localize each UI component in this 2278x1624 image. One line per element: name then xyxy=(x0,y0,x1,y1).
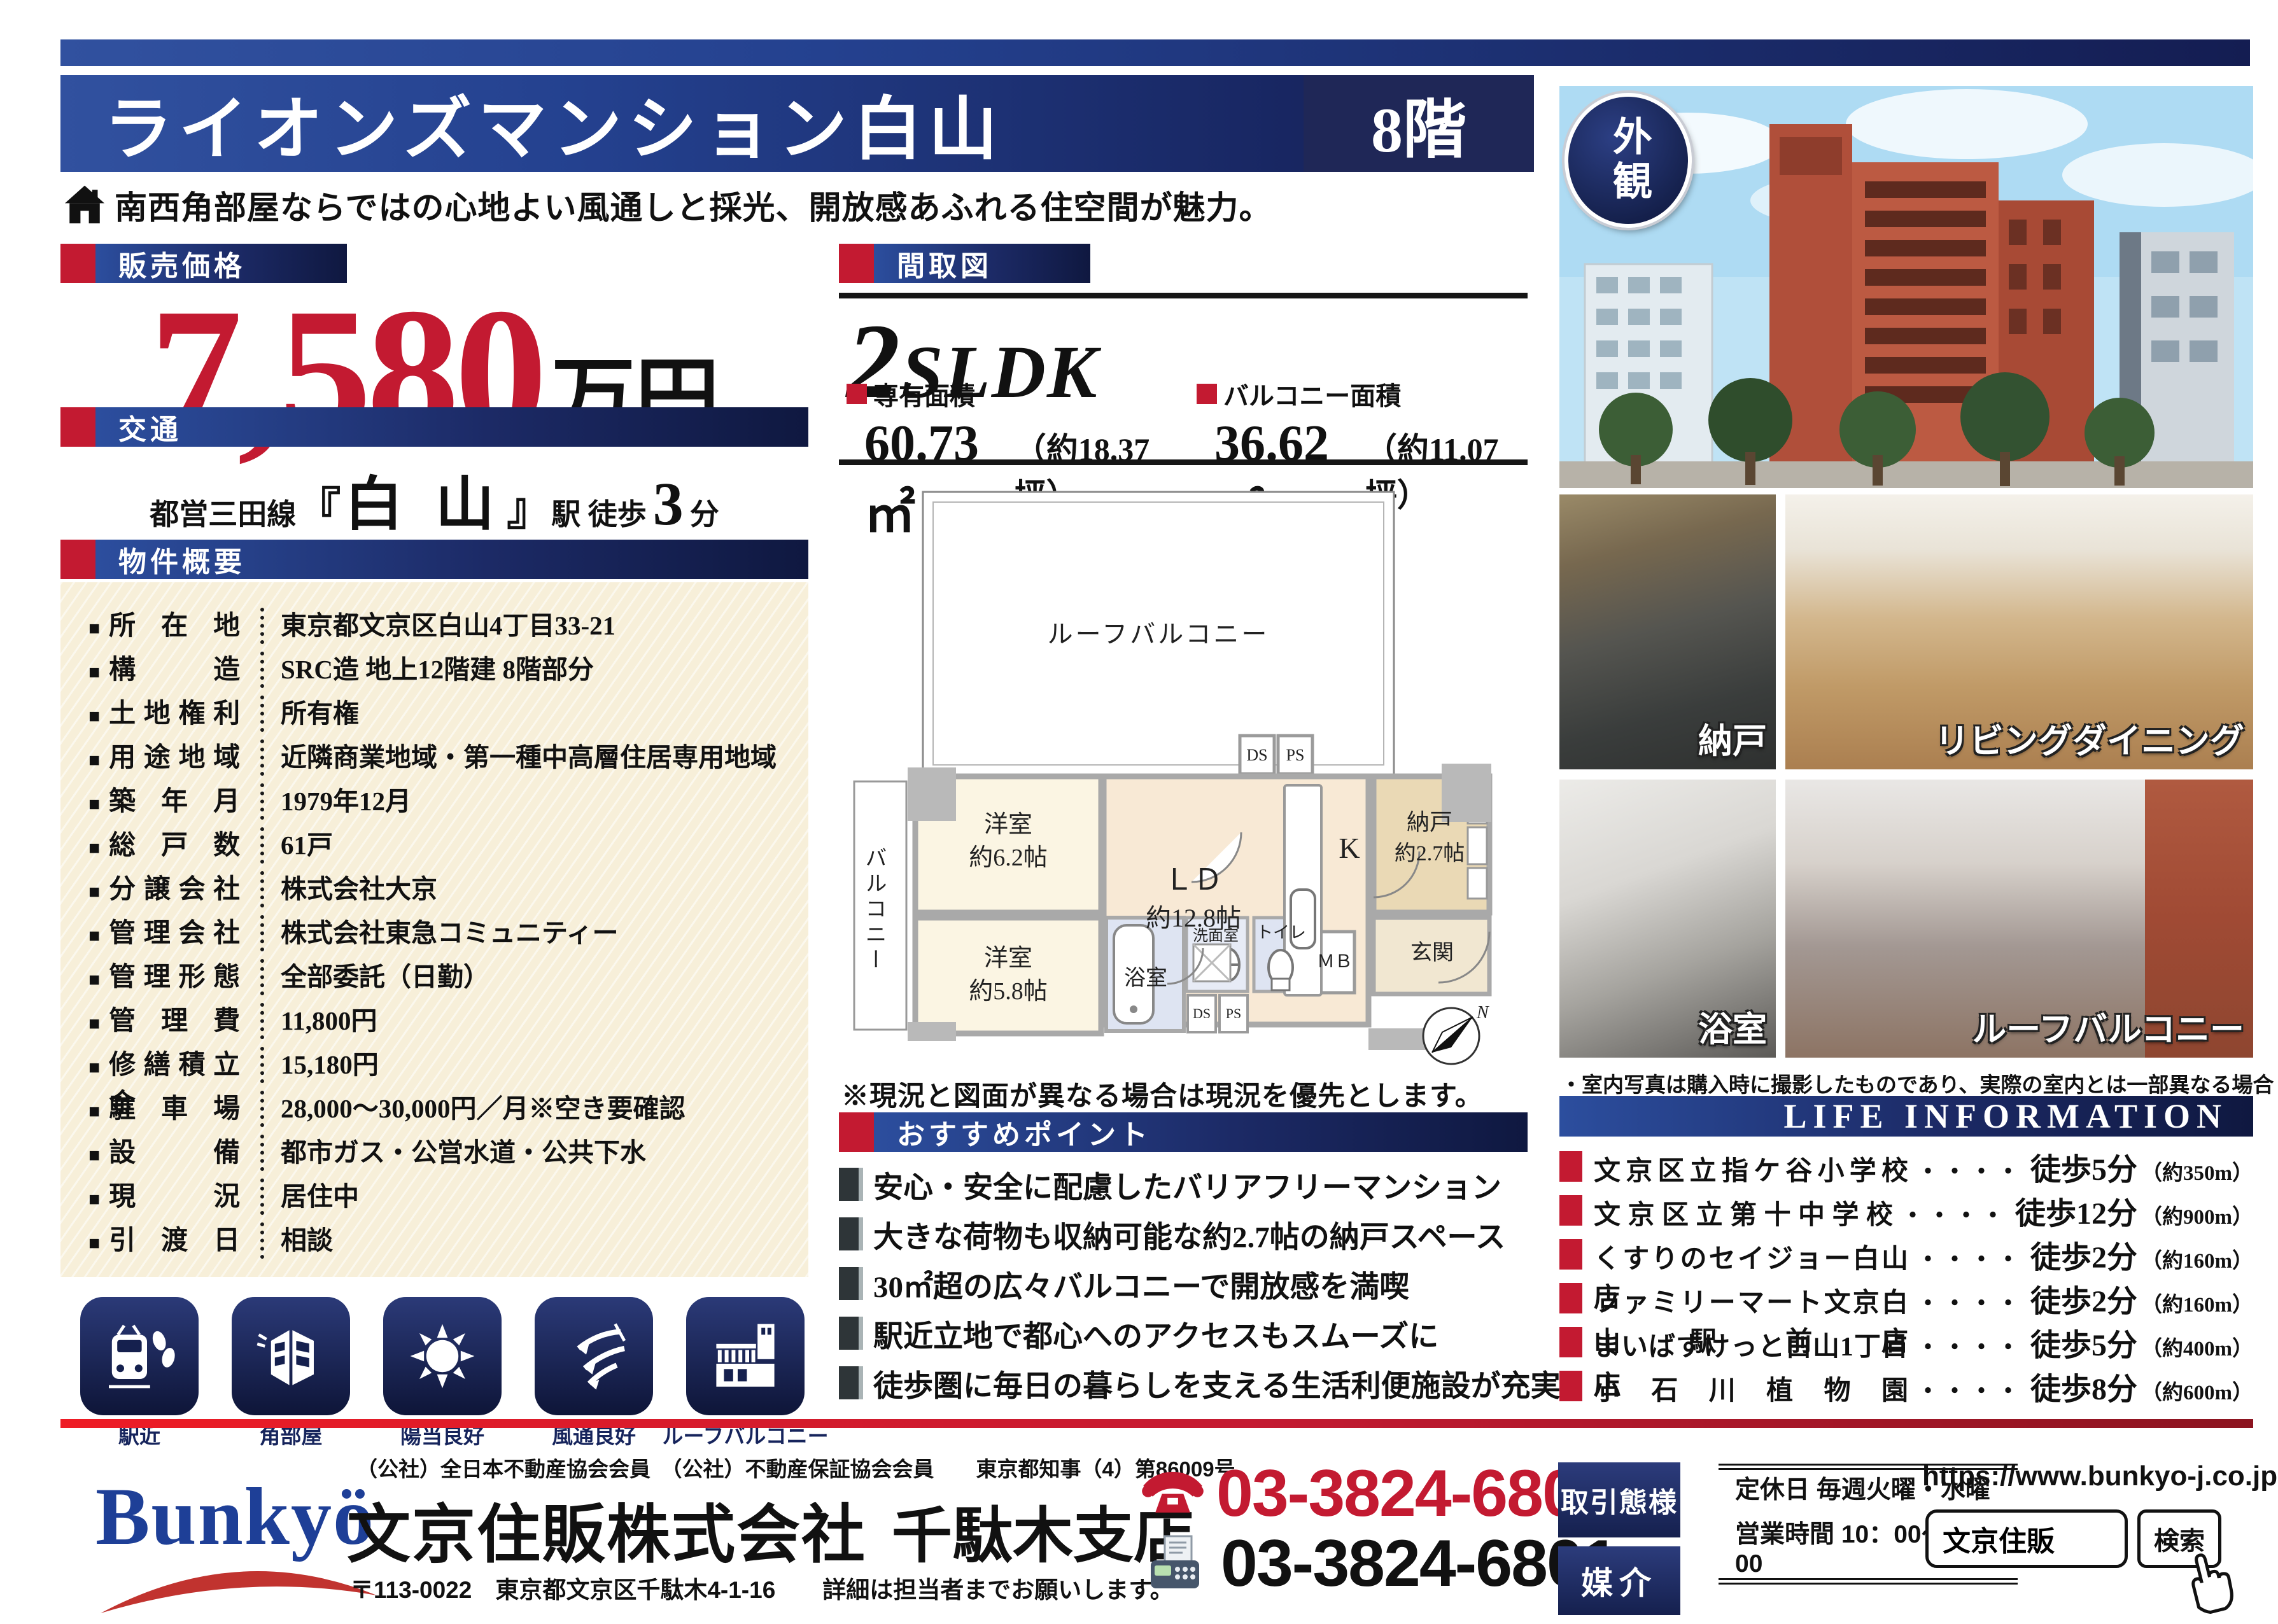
logo-swoosh xyxy=(95,1564,382,1621)
dotted-divider xyxy=(260,1003,264,1039)
dot-leader: ・・・・ xyxy=(1916,1240,2023,1275)
kitchen-label: K xyxy=(1339,832,1360,864)
overview-label: 物件概要 xyxy=(95,539,246,580)
row-label: 引渡日 xyxy=(109,1219,240,1257)
overview-table: 所在地 東京都文京区白山4丁目33-21 構造 SRC造 地上12階建 8階部分… xyxy=(60,582,808,1277)
row-label: 用途地域 xyxy=(109,736,240,774)
walk-time: 徒歩2分 xyxy=(2030,1232,2137,1277)
place-name: 小石川植物園 xyxy=(1594,1369,1908,1408)
roof-balcony-photo: ルーフバルコニー xyxy=(1785,780,2253,1058)
transport-section-header: 交通 xyxy=(60,407,808,447)
dot-leader: ・・・・ xyxy=(1901,1196,2007,1231)
divider xyxy=(839,459,1528,465)
dot-leader: ・・・・ xyxy=(1916,1284,2023,1319)
row-label: 構造 xyxy=(109,648,240,687)
room1-size: 約6.2帖 xyxy=(969,844,1048,871)
life-info-title: LIFE INFORMATION xyxy=(1783,1096,2253,1136)
madori-label: 間取図 xyxy=(874,243,992,284)
row-label: 総戸数 xyxy=(109,823,240,862)
row-value: 株式会社東急コミュニティー xyxy=(281,911,619,949)
storage-size: 約2.7帖 xyxy=(1395,841,1465,865)
tel-row: 03-3824-6800 xyxy=(1139,1456,1614,1532)
row-label: 土地権利 xyxy=(109,692,240,731)
square-bullet xyxy=(839,1267,863,1300)
point-item: 大きな荷物も収納可能な約2.7帖の納戸スペース xyxy=(839,1209,1533,1259)
toilet-label: トイレ xyxy=(1256,923,1306,942)
photo-label: リビングダイニング xyxy=(1935,713,2244,763)
catch-copy-text: 南西角部屋ならではの心地よい風通しと採光、開放感あふれる住空間が魅力。 xyxy=(115,181,1272,228)
table-row: 管理形態 全部委託（日勤） xyxy=(88,955,789,999)
row-value: 全部委託（日勤） xyxy=(281,955,489,993)
fax-row: 03-3824-6801 xyxy=(1146,1526,1618,1602)
dotted-divider xyxy=(260,827,264,864)
photo-label: 浴室 xyxy=(1698,1001,1767,1051)
red-accent xyxy=(60,407,95,447)
life-info-row: 文京区立第十中学校 ・・・・ 徒歩12分 （約900m） xyxy=(1559,1188,2253,1232)
top-accent-bar xyxy=(60,39,2250,66)
walk-time: 徒歩8分 xyxy=(2030,1364,2137,1408)
dotted-divider xyxy=(260,1091,264,1127)
points-label: おすすめポイント xyxy=(874,1112,1151,1152)
deal-type-label: 取引態様 xyxy=(1561,1480,1678,1520)
square-bullet xyxy=(839,1168,863,1201)
exterior-badge: 外観 xyxy=(1564,93,1692,228)
deal-type-value: 媒介 xyxy=(1581,1558,1657,1604)
distance: （約900m） xyxy=(2141,1200,2253,1230)
divider xyxy=(839,293,1528,298)
table-row: 設備 都市ガス・公営水道・公共下水 xyxy=(88,1131,789,1175)
points-section-header: おすすめポイント xyxy=(839,1112,1528,1152)
dotted-divider xyxy=(260,871,264,907)
dotted-divider xyxy=(260,959,264,995)
point-item: 徒歩圏に毎日の暮らしを支える生活利便施設が充実 xyxy=(839,1358,1533,1408)
tel-number: 03-3824-6800 xyxy=(1216,1456,1614,1532)
walk-time: 徒歩5分 xyxy=(2030,1144,2137,1189)
room2-label: 洋室 xyxy=(984,945,1032,972)
row-value: 相談 xyxy=(281,1219,333,1257)
company-name-block: 文京住販株式会社 千駄木支店 xyxy=(347,1483,1194,1575)
row-label: 設備 xyxy=(109,1131,240,1170)
area-label: 専有面積 xyxy=(847,375,1190,412)
north-label: N xyxy=(1476,1003,1489,1023)
row-value: 11,800円 xyxy=(281,999,377,1037)
train-icon xyxy=(80,1297,199,1415)
table-row: 分譲会社 株式会社大京 xyxy=(88,867,789,911)
company-name: 文京住販株式会社 xyxy=(347,1483,866,1575)
place-name: 文京区立第十中学校 xyxy=(1594,1193,1893,1232)
bracket: 』 xyxy=(507,473,551,538)
row-value: 都市ガス・公営水道・公共下水 xyxy=(281,1131,646,1169)
room2-size: 約5.8帖 xyxy=(969,978,1048,1005)
roof-balcony-icon xyxy=(686,1297,805,1415)
table-row: 所在地 東京都文京区白山4丁目33-21 xyxy=(88,604,789,648)
website-url: https://www.bunkyo-j.co.jp xyxy=(1922,1460,2277,1492)
row-value: 近隣商業地域・第一種中高層住居専用地域 xyxy=(281,736,777,774)
distance: （約160m） xyxy=(2141,1243,2253,1274)
distance: （約400m） xyxy=(2141,1331,2253,1362)
fax-icon xyxy=(1146,1532,1209,1596)
storage-label: 納戸 xyxy=(1407,809,1452,835)
life-info-header: LIFE INFORMATION xyxy=(1559,1096,2253,1137)
corner-building-icon xyxy=(232,1297,350,1415)
distance: （約350m） xyxy=(2141,1156,2253,1186)
life-info-list: 文京区立指ケ谷小学校 ・・・・ 徒歩5分 （約350m） 文京区立第十中学校 ・… xyxy=(1559,1144,2253,1408)
red-accent xyxy=(839,1112,874,1152)
life-info-row: 文京区立指ケ谷小学校 ・・・・ 徒歩5分 （約350m） xyxy=(1559,1144,2253,1188)
table-row: 構造 SRC造 地上12階建 8階部分 xyxy=(88,648,789,692)
red-bullet xyxy=(1559,1283,1582,1313)
hand-cursor-icon xyxy=(2166,1540,2245,1623)
transport-line: 都営三田線 『 白 山 』 駅 徒歩 3 分 xyxy=(60,457,808,521)
point-item: 30㎡超の広々バルコニーで開放感を満喫 xyxy=(839,1259,1533,1308)
point-text: 大きな荷物も収納可能な約2.7帖の納戸スペース xyxy=(873,1212,1505,1256)
row-value: 1979年12月 xyxy=(281,780,411,818)
square-bullet xyxy=(839,1217,863,1250)
wind-icon xyxy=(535,1297,653,1415)
row-value: 居住中 xyxy=(281,1175,359,1213)
point-item: 駅近立地で都心へのアクセスもスムーズに xyxy=(839,1308,1533,1358)
company-address: 〒113-0022 東京都文京区千駄木4-1-16 詳細は担当者までお願いします… xyxy=(350,1571,1174,1605)
point-text: 徒歩圏に毎日の暮らしを支える生活利便施設が充実 xyxy=(873,1361,1561,1405)
walk-label: 駅 徒歩 xyxy=(551,491,647,533)
dotted-divider xyxy=(260,1179,264,1215)
balcony-label: バルコニー xyxy=(858,846,889,974)
life-info-row: ファミリーマート文京白山駅前店 ・・・・ 徒歩2分 （約160m） xyxy=(1559,1276,2253,1320)
table-row: 土地権利 所有権 xyxy=(88,692,789,736)
page-title: ライオンズマンション白山 xyxy=(60,74,1004,173)
storage-photo: 納戸 xyxy=(1559,494,1776,769)
walk-time: 徒歩12分 xyxy=(2015,1188,2137,1233)
table-row: 管理費 11,800円 xyxy=(88,999,789,1043)
table-row: 駐車場 28,000〜30,000円／月※空き要確認 xyxy=(88,1087,789,1131)
deal-type-value-box: 媒介 xyxy=(1558,1546,1680,1615)
walk-minutes-unit: 分 xyxy=(690,491,719,533)
wash-label: 洗面室 xyxy=(1193,927,1239,944)
station-name: 白 山 xyxy=(344,457,503,542)
distance: （約160m） xyxy=(2141,1287,2253,1318)
dotted-divider xyxy=(260,1135,264,1171)
life-info-row: 小石川植物園 ・・・・ 徒歩8分 （約600m） xyxy=(1559,1364,2253,1408)
dotted-divider xyxy=(260,1047,264,1083)
dotted-divider xyxy=(260,915,264,951)
photo-label: ルーフバルコニー xyxy=(1972,1001,2244,1051)
living-dining-photo: リビングダイニング xyxy=(1785,494,2253,769)
row-label: 現況 xyxy=(109,1175,240,1214)
dotted-divider xyxy=(260,1222,264,1259)
dot-leader: ・・・・ xyxy=(1916,1327,2023,1362)
red-bullet xyxy=(1559,1371,1582,1401)
row-label: 管理費 xyxy=(109,999,240,1038)
bath-photo: 浴室 xyxy=(1559,780,1776,1058)
row-value: SRC造 地上12階建 8階部分 xyxy=(281,648,594,686)
floor-badge-label: 8階 xyxy=(1371,78,1466,170)
madori-section-header: 間取図 xyxy=(839,244,1090,283)
square-bullet xyxy=(839,1317,863,1350)
row-value: 61戸 xyxy=(281,823,333,862)
ds-label: DS xyxy=(1193,1005,1211,1021)
logo-text: Bunkyö xyxy=(95,1470,388,1564)
row-label: 管理会社 xyxy=(109,911,240,950)
row-label: 分譲会社 xyxy=(109,867,240,906)
red-bullet xyxy=(1559,1151,1582,1182)
row-value: 28,000〜30,000円／月※空き要確認 xyxy=(281,1087,686,1125)
bracket: 『 xyxy=(296,473,341,538)
table-row: 管理会社 株式会社東急コミュニティー xyxy=(88,911,789,955)
life-info-row: くすりのセイジョー白山店 ・・・・ 徒歩2分 （約160m） xyxy=(1559,1232,2253,1276)
dot-leader: ・・・・ xyxy=(1916,1371,2023,1406)
red-accent xyxy=(60,540,95,579)
red-accent xyxy=(839,244,874,283)
ld-label: ＬＤ xyxy=(1164,864,1223,896)
row-label: 築年月 xyxy=(109,780,240,818)
place-name: 文京区立指ケ谷小学校 xyxy=(1594,1149,1908,1188)
point-item: 安心・安全に配慮したバリアフリーマンション xyxy=(839,1159,1533,1209)
dotted-divider xyxy=(260,608,264,644)
table-row: 築年月 1979年12月 xyxy=(88,780,789,823)
red-bullet xyxy=(1559,1239,1582,1270)
room1-label: 洋室 xyxy=(984,811,1032,838)
exterior-badge-label: 外観 xyxy=(1600,116,1657,205)
roof-balcony-label: ルーフバルコニー xyxy=(1048,620,1270,648)
red-bullet xyxy=(1559,1327,1582,1357)
table-row: 用途地域 近隣商業地域・第一種中高層住居専用地域 xyxy=(88,736,789,780)
table-row: 修繕積立金 15,180円 xyxy=(88,1043,789,1087)
walk-minutes: 3 xyxy=(653,468,684,539)
dotted-divider xyxy=(260,652,264,688)
walk-time: 徒歩5分 xyxy=(2030,1320,2137,1364)
ds-label: DS xyxy=(1246,746,1267,764)
photo-label: 納戸 xyxy=(1698,713,1767,763)
walk-time: 徒歩2分 xyxy=(2030,1276,2137,1320)
house-icon xyxy=(64,184,106,226)
overview-section-header: 物件概要 xyxy=(60,540,808,579)
search-input[interactable] xyxy=(1925,1509,2128,1568)
row-label: 駐車場 xyxy=(109,1087,240,1126)
row-value: 15,180円 xyxy=(281,1043,379,1081)
dotted-divider xyxy=(260,696,264,732)
train-line: 都営三田線 xyxy=(150,491,296,533)
distance: （約600m） xyxy=(2141,1375,2253,1406)
row-value: 東京都文京区白山4丁目33-21 xyxy=(281,604,615,642)
table-row: 現況 居住中 xyxy=(88,1175,789,1219)
ps-label: PS xyxy=(1226,1005,1241,1021)
red-bullet xyxy=(1559,1195,1582,1226)
deal-type-label-box: 取引態様 xyxy=(1558,1462,1680,1537)
dot-leader: ・・・・ xyxy=(1916,1152,2023,1187)
ps-label: PS xyxy=(1286,746,1305,764)
row-label: 所在地 xyxy=(109,604,240,643)
square-bullet xyxy=(839,1366,863,1399)
company-logo: Bunkyö xyxy=(95,1470,388,1624)
floor-badge: 8階 xyxy=(1304,75,1534,172)
table-row: 総戸数 61戸 xyxy=(88,823,789,867)
area-label: バルコニー面積 xyxy=(1197,375,1540,412)
row-value: 株式会社大京 xyxy=(281,867,437,906)
phone-icon xyxy=(1139,1460,1206,1527)
row-label: 管理形態 xyxy=(109,955,240,994)
bath-label: 浴室 xyxy=(1124,966,1167,990)
transport-label: 交通 xyxy=(95,407,182,447)
table-row: 引渡日 相談 xyxy=(88,1219,789,1263)
catch-copy: 南西角部屋ならではの心地よい風通しと採光、開放感あふれる住空間が魅力。 xyxy=(64,181,1540,228)
point-text: 駅近立地で都心へのアクセスもスムーズに xyxy=(873,1312,1438,1355)
point-text: 30㎡超の広々バルコニーで開放感を満喫 xyxy=(873,1262,1409,1306)
point-text: 安心・安全に配慮したバリアフリーマンション xyxy=(873,1163,1501,1207)
red-divider xyxy=(60,1419,2253,1428)
sun-icon xyxy=(383,1297,502,1415)
life-info-row: まいばすけっと白山1丁目店 ・・・・ 徒歩5分 （約400m） xyxy=(1559,1320,2253,1364)
dotted-divider xyxy=(260,783,264,820)
floor-plan: ルーフバルコニー DS PS DS PS xyxy=(847,476,1508,1068)
entrance-label: 玄関 xyxy=(1410,941,1454,965)
row-value: 所有権 xyxy=(281,692,359,730)
madori-note: ※現況と図面が異なる場合は現況を優先とします。 xyxy=(841,1074,1483,1114)
mb-label: ＭＢ xyxy=(1317,952,1353,972)
points-list: 安心・安全に配慮したバリアフリーマンション 大きな荷物も収納可能な約2.7帖の納… xyxy=(839,1159,1533,1408)
dotted-divider xyxy=(260,739,264,776)
membership-line: （公社）全日本不動産協会会員 （公社）不動産保証協会会員 東京都知事（4）第86… xyxy=(356,1452,1235,1483)
